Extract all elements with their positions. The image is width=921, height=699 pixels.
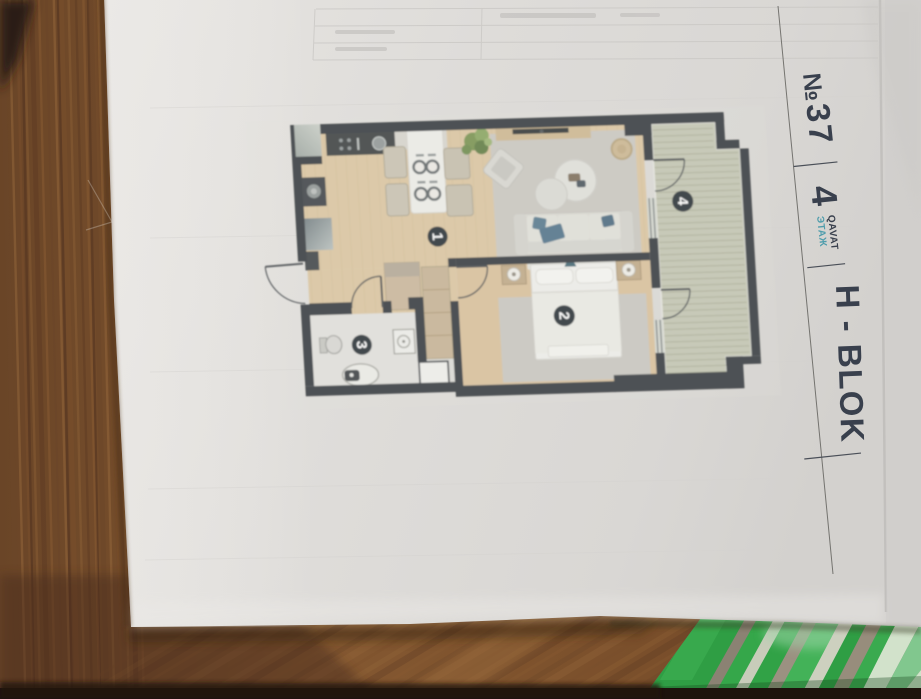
svg-text:H - BLOK: H - BLOK	[829, 284, 872, 444]
svg-text:4: 4	[803, 183, 846, 207]
